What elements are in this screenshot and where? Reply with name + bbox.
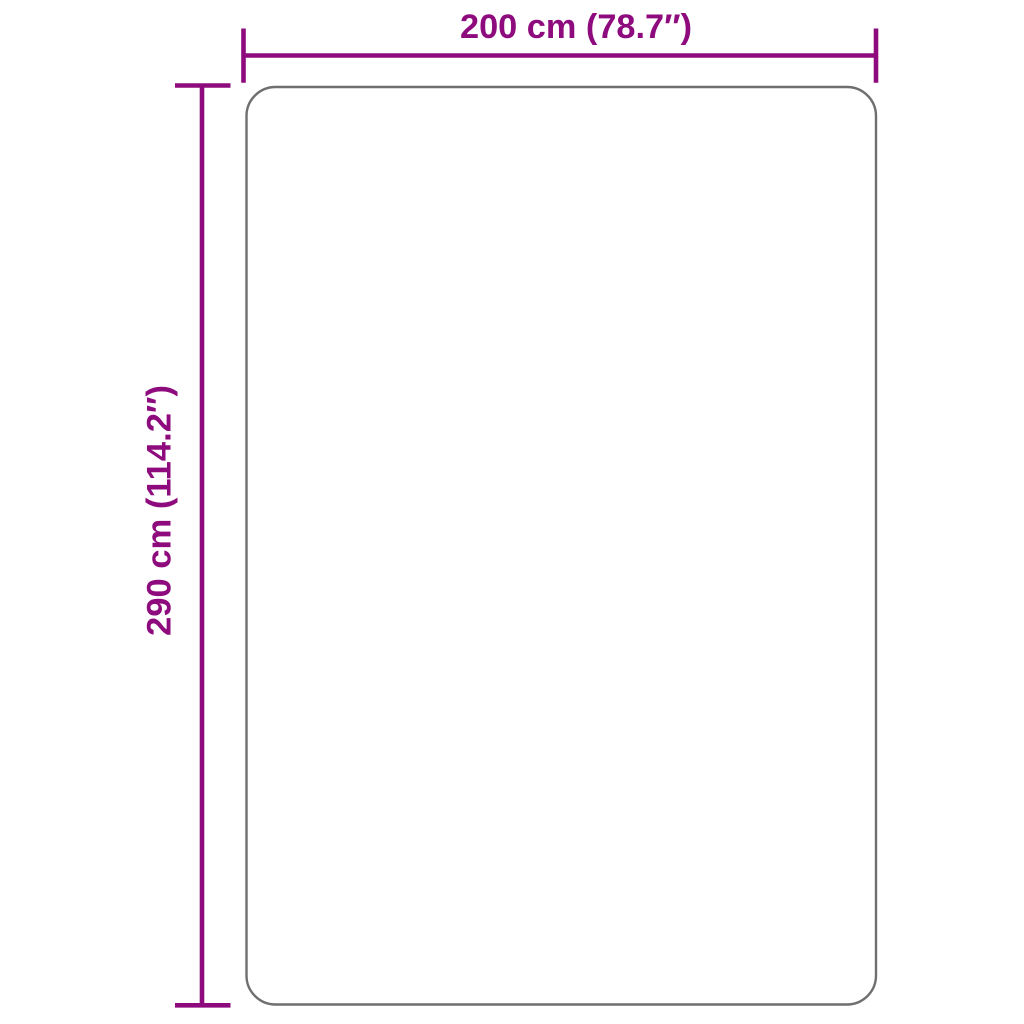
svg-text:290 cm (114.2″): 290 cm (114.2″) xyxy=(141,385,179,636)
svg-text:200 cm (78.7″): 200 cm (78.7″) xyxy=(460,8,692,46)
